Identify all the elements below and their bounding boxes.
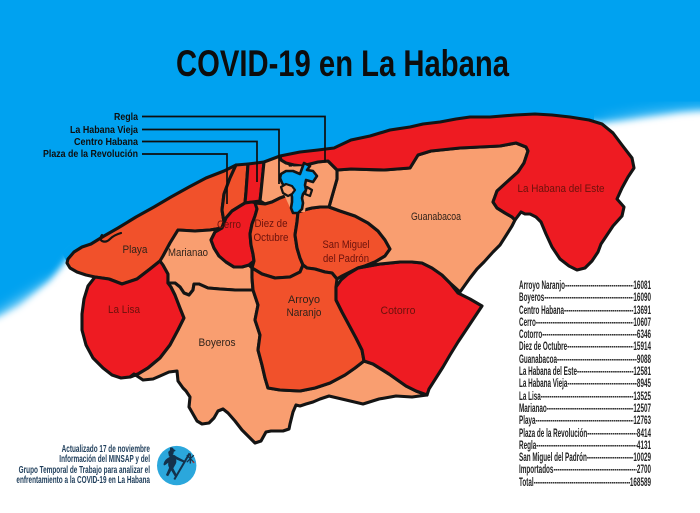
svg-text:del Padrón: del Padrón: [323, 253, 369, 265]
svg-text:Plaza de la Revolución: Plaza de la Revolución: [43, 148, 138, 160]
svg-text:Cotorro: Cotorro: [381, 305, 416, 317]
svg-text:Guanabacoa: Guanabacoa: [411, 211, 462, 223]
svg-text:Naranjo: Naranjo: [287, 307, 322, 319]
svg-text:La Lisa: La Lisa: [108, 304, 141, 316]
svg-text:Arroyo: Arroyo: [288, 294, 320, 306]
svg-text:San Miguel: San Miguel: [323, 239, 370, 251]
svg-text:La Habana Vieja: La Habana Vieja: [70, 124, 138, 136]
svg-text:La Habana del Este: La Habana del Este: [518, 183, 605, 195]
svg-text:Boyeros: Boyeros: [199, 337, 236, 349]
svg-text:Regla: Regla: [114, 111, 138, 123]
svg-text:Marianao: Marianao: [168, 247, 208, 259]
svg-text:Centro Habana: Centro Habana: [74, 136, 138, 148]
svg-text:Diez de: Diez de: [255, 218, 288, 230]
svg-text:Cerro: Cerro: [217, 219, 241, 231]
svg-text:Playa: Playa: [123, 244, 149, 256]
svg-text:Octubre: Octubre: [254, 232, 289, 244]
